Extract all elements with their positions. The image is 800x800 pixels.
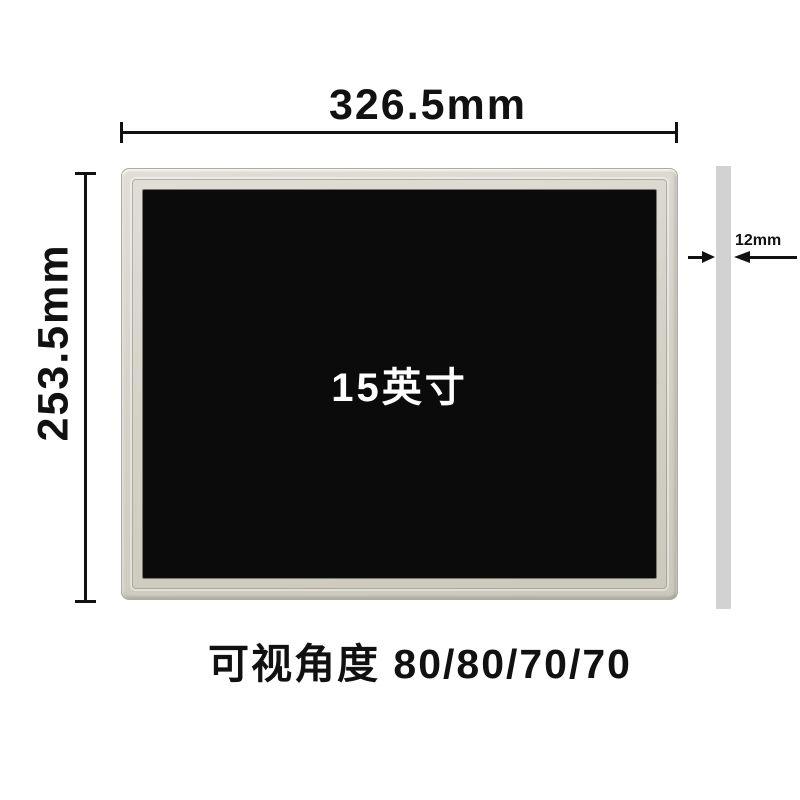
height-dimension-tick-bottom bbox=[75, 600, 96, 603]
thickness-dimension-label: 12mm bbox=[735, 233, 781, 249]
product-dimension-diagram: 326.5mm 253.5mm 15英寸 12mm 可视角度 80/80/70/… bbox=[0, 0, 800, 800]
panel-side-view bbox=[716, 166, 731, 609]
viewing-angle-caption: 可视角度 80/80/70/70 bbox=[150, 642, 690, 687]
width-dimension-tick-right bbox=[675, 122, 678, 143]
panel-screen: 15英寸 bbox=[142, 189, 657, 579]
thickness-arrow-left-head-icon bbox=[702, 251, 715, 263]
panel-front-view: 15英寸 bbox=[121, 168, 678, 600]
thickness-arrow-right-shaft bbox=[748, 256, 797, 259]
screen-size-label: 15英寸 bbox=[331, 355, 468, 413]
width-dimension-tick-left bbox=[120, 122, 123, 143]
height-dimension-line bbox=[84, 172, 87, 603]
height-dimension-tick-top bbox=[75, 172, 96, 175]
width-dimension-label: 326.5mm bbox=[268, 84, 588, 127]
width-dimension-line bbox=[121, 131, 678, 134]
height-dimension-label: 253.5mm bbox=[33, 223, 76, 463]
